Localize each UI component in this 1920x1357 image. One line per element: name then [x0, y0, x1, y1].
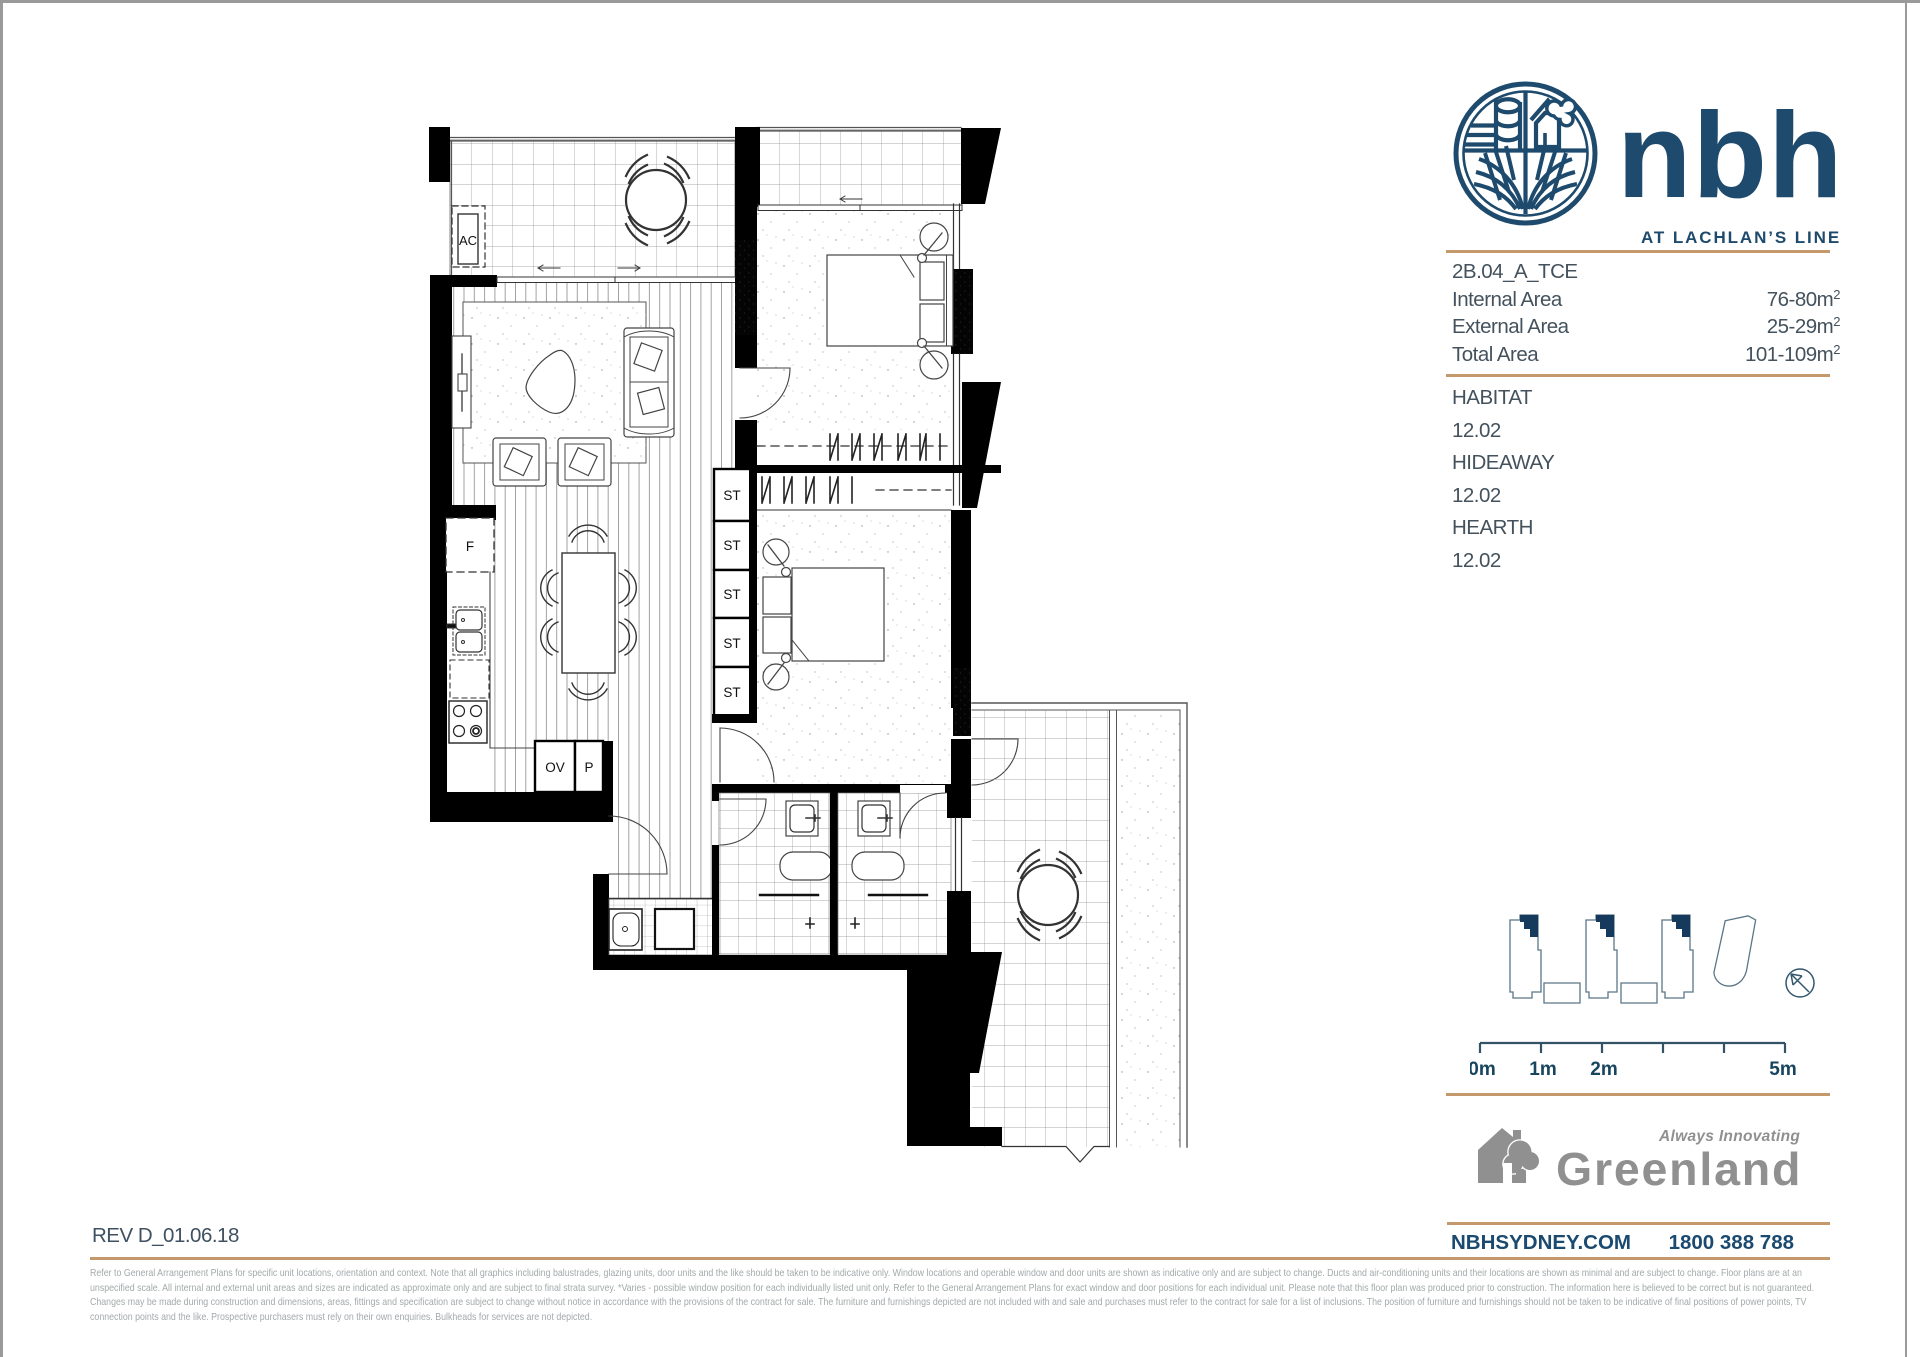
svg-text:2m: 2m	[1590, 1059, 1617, 1080]
svg-text:ST: ST	[723, 685, 740, 700]
svg-text:5m: 5m	[1769, 1059, 1796, 1080]
svg-text:F: F	[466, 539, 474, 554]
svg-text:AC: AC	[459, 233, 477, 248]
svg-text:ST: ST	[723, 587, 740, 602]
svg-text:ST: ST	[723, 538, 740, 553]
svg-text:OV: OV	[545, 760, 565, 775]
svg-text:P: P	[584, 760, 593, 775]
svg-text:ST: ST	[723, 488, 740, 503]
svg-text:1m: 1m	[1529, 1059, 1556, 1080]
svg-text:ST: ST	[723, 636, 740, 651]
svg-text:0m: 0m	[1470, 1059, 1496, 1080]
